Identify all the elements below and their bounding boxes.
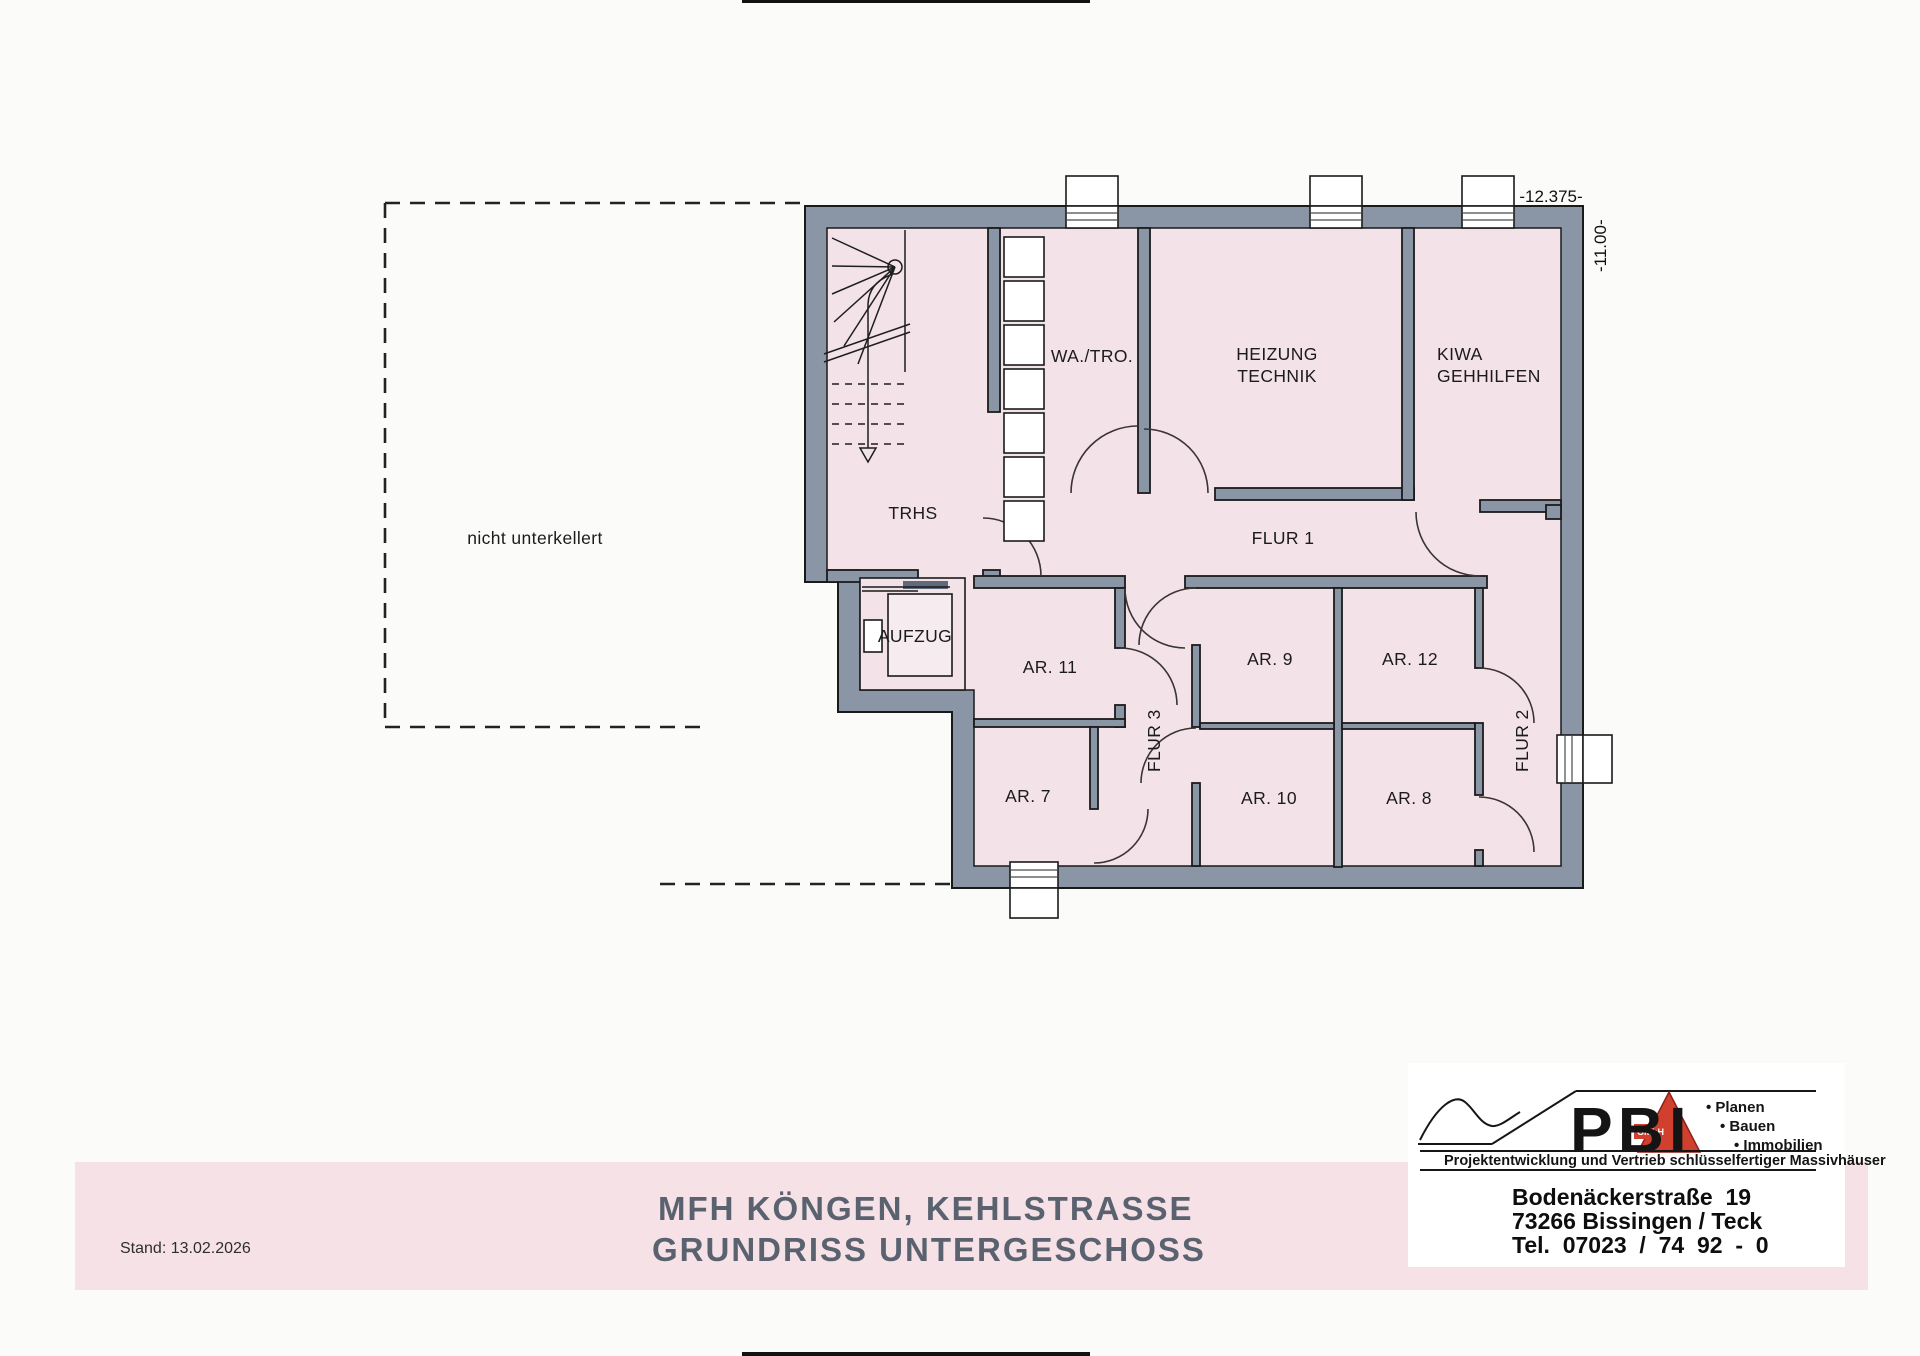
room-label-flur3: FLUR 3: [1144, 709, 1164, 772]
address-block: Bodenäckerstraße 19 73266 Bissingen / Te…: [1512, 1184, 1769, 1258]
window-flur2: [1557, 735, 1612, 783]
room-label-ar12: AR. 12: [1382, 649, 1438, 669]
room-label-gehhilfen: GEHHILFEN: [1437, 366, 1541, 386]
room-label-aufzug: AUFZUG: [878, 626, 952, 646]
dimension-height: -11.00-: [1591, 219, 1610, 272]
address-city: 73266 Bissingen / Teck: [1512, 1208, 1762, 1234]
address-phone: Tel. 07023 / 74 92 - 0: [1512, 1232, 1769, 1258]
room-label-watro: WA./TRO.: [1051, 346, 1133, 366]
watro-shelf-column: [1004, 237, 1044, 541]
area-note-label: nicht unterkellert: [467, 528, 603, 548]
window-kiwa: [1462, 176, 1514, 228]
room-label-heizung: HEIZUNG: [1236, 344, 1318, 364]
logo-tagline: Projektentwicklung und Vertrieb schlüsse…: [1444, 1153, 1886, 1169]
window-heizung: [1310, 176, 1362, 228]
room-label-ar7: AR. 7: [1005, 786, 1051, 806]
room-label-flur2: FLUR 2: [1512, 709, 1532, 772]
room-label-ar11: AR. 11: [1023, 657, 1078, 677]
room-label-kiwa: KIWA: [1437, 344, 1483, 364]
dimension-width: -12.375-: [1519, 187, 1582, 206]
address-street: Bodenäckerstraße 19: [1512, 1184, 1751, 1210]
window-wa-tro: [1066, 176, 1118, 228]
drawing-title: GRUNDRISS UNTERGESCHOSS: [652, 1231, 1206, 1268]
stand-date: Stand: 13.02.2026: [120, 1240, 251, 1257]
scan-mark-top: [742, 0, 1090, 3]
scan-mark-bottom: [742, 1352, 1090, 1356]
elevator-door-slab: [903, 581, 948, 589]
project-title: MFH KÖNGEN, KEHLSTRASSE: [658, 1190, 1194, 1227]
room-label-trhs: TRHS: [888, 503, 937, 523]
window-ar7: [1010, 862, 1058, 918]
room-label-technik: TECHNIK: [1237, 366, 1317, 386]
room-label-flur1: FLUR 1: [1252, 528, 1315, 548]
bullet-bauen: • Bauen: [1720, 1118, 1775, 1135]
bullet-planen: • Planen: [1706, 1099, 1765, 1116]
floorplan-canvas: nicht unterkellert: [0, 0, 1920, 1356]
room-label-ar9: AR. 9: [1247, 649, 1293, 669]
logo-panel: GmbH PBI • Planen • Bauen • Immobilien P…: [1408, 1063, 1886, 1267]
scanned-floorplan-sheet: nicht unterkellert: [0, 0, 1920, 1356]
room-label-ar8: AR. 8: [1386, 788, 1432, 808]
room-label-ar10: AR. 10: [1241, 788, 1297, 808]
